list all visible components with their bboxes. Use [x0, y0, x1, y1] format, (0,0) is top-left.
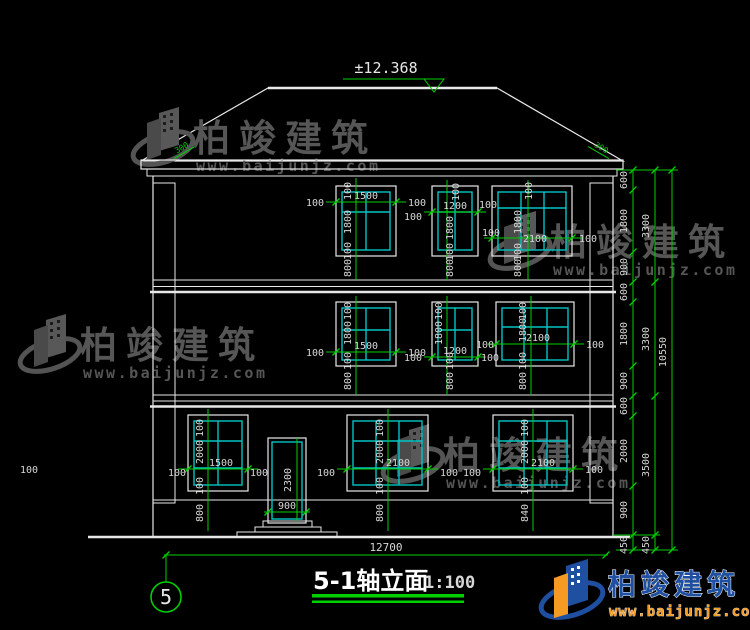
dim-label: 1800	[619, 209, 630, 233]
dim-label: 100	[408, 198, 426, 209]
dim-label: 800	[518, 372, 529, 390]
floor-slab-2	[150, 395, 616, 407]
dim-label: 100	[482, 228, 500, 239]
dim-label: 100	[195, 419, 206, 437]
dims-f1w1: 1500 100 100 100 2000 100 800 100	[20, 409, 268, 531]
axis-number: 5	[160, 585, 172, 609]
dim-label: 1800	[445, 216, 456, 240]
dim-label: 2000	[375, 440, 386, 464]
dim-label: 900	[619, 501, 630, 519]
dim-label: 100	[518, 352, 529, 370]
dim-label: 100	[463, 468, 481, 479]
dim-label: 900	[278, 501, 296, 512]
dim-label: 2000	[619, 439, 630, 463]
dim-label: 100	[513, 243, 524, 261]
dim-label: 2100	[386, 458, 410, 469]
dim-label: 450	[641, 536, 652, 554]
dim-label: 100	[343, 242, 354, 260]
dim-label: 12700	[369, 541, 402, 554]
dim-label: 100	[445, 352, 456, 370]
dim-label: 900	[619, 372, 630, 390]
drawing-scale: 1:100	[424, 573, 475, 593]
brand-logo: 柏竣建筑 www.baijunjz.com	[537, 559, 750, 624]
logo-brand-text: 柏竣建筑	[608, 568, 740, 601]
dim-label: 1500	[354, 191, 378, 202]
dim-label: 3300	[641, 214, 652, 238]
dim-label: 2000	[195, 440, 206, 464]
dim-label: 100	[586, 340, 604, 351]
dims-f3w2: 1200 100 100 100 1800 100 800	[404, 180, 500, 280]
dim-label: 100	[306, 198, 324, 209]
dim-label: 2100	[523, 234, 547, 245]
dim-label: 450	[619, 536, 630, 554]
dim-label: 100	[20, 465, 38, 476]
dim-label: 100	[479, 200, 497, 211]
dim-label: 100	[520, 419, 531, 437]
title-underline-thick	[312, 594, 464, 598]
drawing-title: 5-1轴立面	[313, 567, 428, 595]
cad-elevation-canvas: 柏竣建筑 www.baijunjz.com ±12.368 300 300	[0, 0, 750, 630]
dim-label: 800	[343, 259, 354, 277]
watermark-top	[129, 107, 380, 175]
dim-label: 1500	[354, 341, 378, 352]
dim-label: 800	[195, 504, 206, 522]
floor-slab-1	[150, 280, 616, 292]
dim-label: 2100	[531, 458, 555, 469]
dim-label: 2300	[283, 468, 294, 492]
dim-label: 800	[445, 372, 456, 390]
logo-site-text: www.baijunjz.com	[609, 604, 750, 620]
dim-label: 100	[518, 302, 529, 320]
dim-label: 600	[619, 171, 630, 189]
dim-label: 800	[375, 504, 386, 522]
dim-label: 100	[440, 468, 458, 479]
dim-label: 100	[524, 182, 535, 200]
dim-label: 100	[579, 234, 597, 245]
dim-total-width: 12700	[163, 541, 610, 559]
dim-label: 100	[585, 465, 603, 476]
dim-label: 100	[343, 302, 354, 320]
dim-label: 100	[404, 212, 422, 223]
elevation-triangle-icon	[424, 79, 444, 92]
axis-bubble: 5	[151, 555, 181, 612]
dim-label: 800	[343, 372, 354, 390]
slope-mark-right: 300	[588, 138, 614, 159]
dim-label: 1800	[513, 210, 524, 234]
dim-label: 1800	[619, 322, 630, 346]
dim-label: 100	[168, 468, 186, 479]
elevation-value: ±12.368	[354, 59, 417, 77]
title-underline-thin	[312, 601, 464, 604]
dim-label: 100	[195, 477, 206, 495]
dim-label: 100	[476, 340, 494, 351]
dim-label: 900	[619, 258, 630, 276]
dim-label: 600	[619, 283, 630, 301]
dims-door: 900 2300	[264, 438, 310, 521]
dim-label: 100	[445, 243, 456, 261]
dim-label: 100	[375, 477, 386, 495]
dim-label: 100	[250, 468, 268, 479]
dim-label: 2000	[520, 440, 531, 464]
dim-label: 100	[520, 477, 531, 495]
watermark-bottom-right	[379, 424, 630, 492]
dim-label: 100	[404, 353, 422, 364]
dim-label: 100	[481, 353, 499, 364]
dim-label: 2100	[526, 333, 550, 344]
dim-label: 3500	[641, 453, 652, 477]
dim-label: 3300	[641, 327, 652, 351]
dim-label: 100	[434, 302, 445, 320]
title-block: 5-1轴立面 1:100	[312, 567, 475, 603]
dim-label: 100	[375, 419, 386, 437]
dim-label: 1200	[443, 201, 467, 212]
dim-label: 800	[513, 259, 524, 277]
dim-label: 600	[619, 397, 630, 415]
watermark-left	[16, 314, 267, 382]
dims-f2w3: 2100 100 100 100 1800 100 800	[476, 296, 604, 395]
dim-label: 1800	[343, 210, 354, 234]
elevation-drawing: 柏竣建筑 www.baijunjz.com ±12.368 300 300	[0, 0, 750, 630]
dim-label: 1500	[209, 458, 233, 469]
dim-label: 1800	[518, 318, 529, 342]
dim-label: 100	[451, 183, 462, 201]
dim-label: 10550	[658, 337, 669, 367]
dim-label: 100	[306, 348, 324, 359]
svg-text:300: 300	[593, 140, 610, 155]
dim-label: 100	[317, 468, 335, 479]
logo-building-icon-front	[554, 573, 568, 618]
dim-label: 840	[520, 504, 531, 522]
dim-label: 100	[343, 182, 354, 200]
dim-label: 800	[445, 259, 456, 277]
dim-label: 1800	[434, 321, 445, 345]
dim-label: 1800	[343, 321, 354, 345]
dim-label: 100	[343, 352, 354, 370]
